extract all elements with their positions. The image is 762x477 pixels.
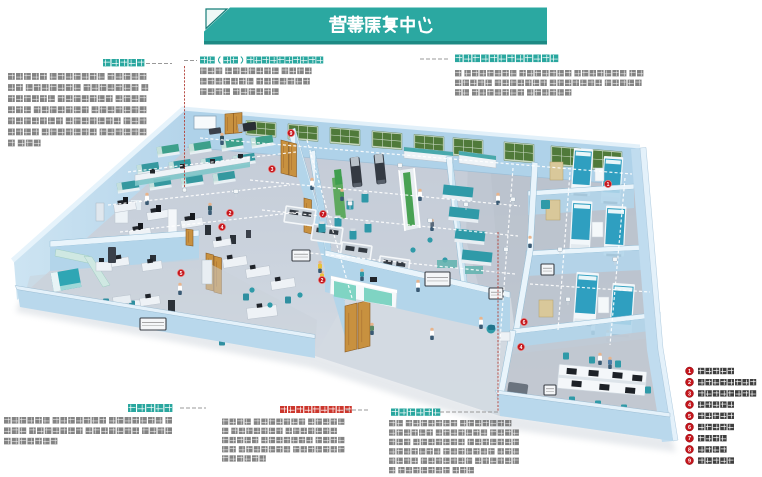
svg-text:6: 6	[523, 320, 526, 326]
svg-text:2: 2	[688, 380, 691, 386]
svg-text:2: 2	[229, 211, 232, 217]
svg-text:2: 2	[321, 278, 324, 284]
svg-text:9: 9	[290, 131, 293, 137]
svg-text:1: 1	[607, 182, 610, 188]
svg-text:5: 5	[688, 414, 691, 420]
svg-text:7: 7	[688, 436, 691, 442]
svg-text:4: 4	[221, 225, 224, 231]
svg-text:5: 5	[180, 271, 183, 277]
svg-text:3: 3	[688, 391, 691, 397]
svg-text:3: 3	[271, 167, 274, 173]
svg-text:1: 1	[688, 369, 691, 375]
svg-text:8: 8	[688, 447, 691, 453]
svg-text:6: 6	[688, 425, 691, 431]
svg-text:7: 7	[322, 212, 325, 218]
svg-text:9: 9	[688, 459, 691, 465]
svg-text:4: 4	[520, 345, 523, 351]
